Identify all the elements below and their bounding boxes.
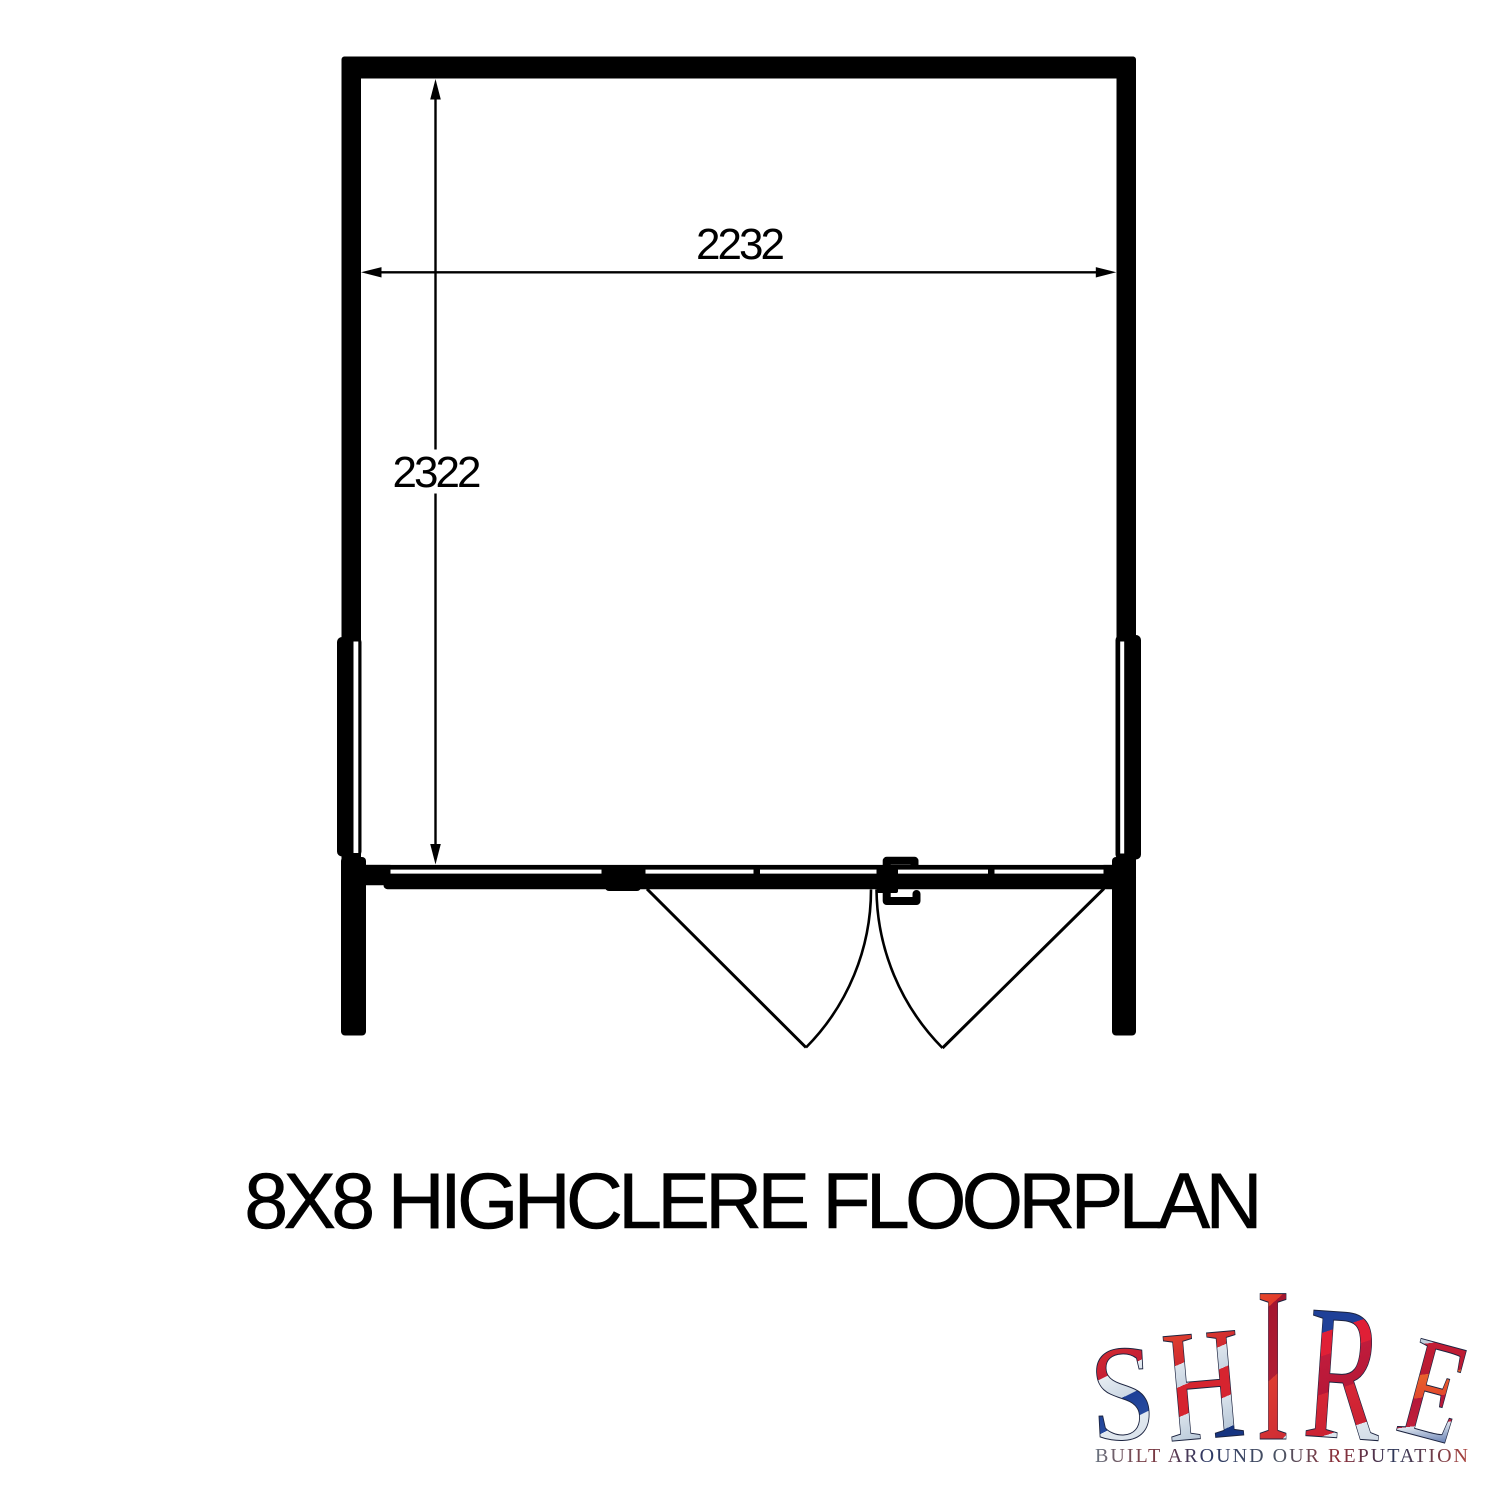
svg-text:8X8 HIGHCLERE FLOORPLAN: 8X8 HIGHCLERE FLOORPLAN [244,1156,1258,1245]
svg-text:2232: 2232 [696,220,783,269]
svg-text:2322: 2322 [393,448,480,497]
svg-text:BUILT AROUND OUR REPUTATION: BUILT AROUND OUR REPUTATION [1095,1445,1468,1467]
